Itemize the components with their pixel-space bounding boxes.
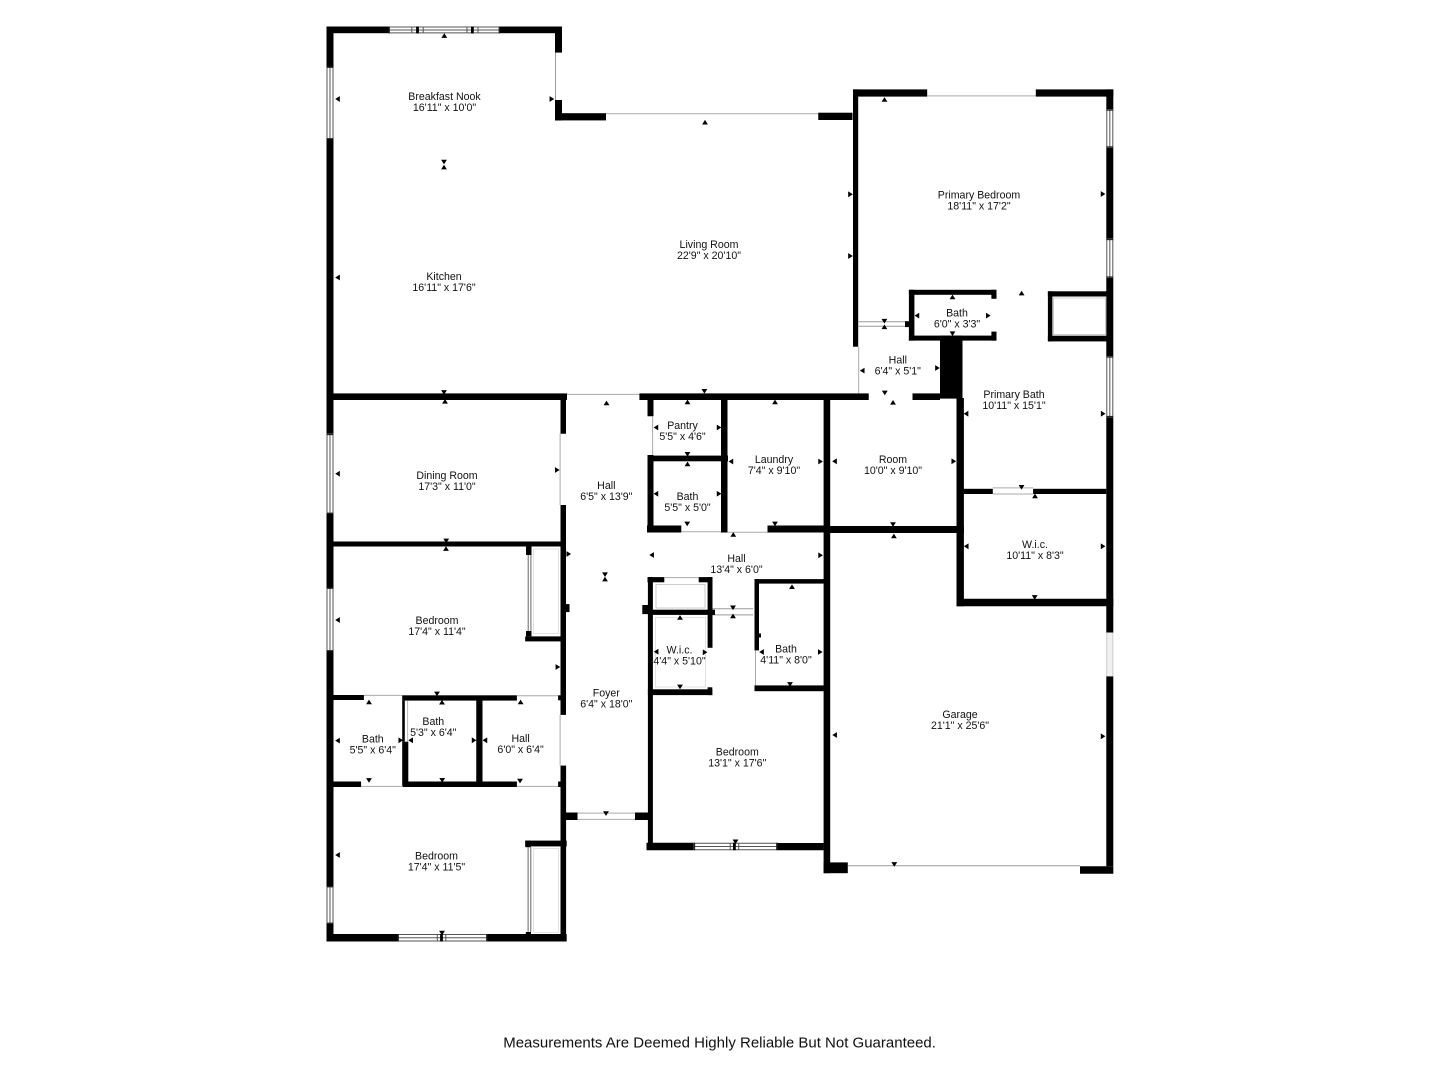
svg-text:4'4" x 5'10": 4'4" x 5'10" <box>653 655 705 667</box>
svg-text:Measurements Are Deemed Highly: Measurements Are Deemed Highly Reliable … <box>503 1034 936 1051</box>
svg-text:10'0" x 9'10": 10'0" x 9'10" <box>864 465 922 477</box>
svg-text:6'4" x 18'0": 6'4" x 18'0" <box>580 698 632 710</box>
svg-text:18'11" x 17'2": 18'11" x 17'2" <box>947 200 1010 212</box>
svg-text:5'5" x 4'6": 5'5" x 4'6" <box>659 431 706 443</box>
svg-text:6'0" x 3'3": 6'0" x 3'3" <box>934 318 981 330</box>
svg-text:13'1" x 17'6": 13'1" x 17'6" <box>708 757 766 769</box>
svg-text:17'4" x 11'5": 17'4" x 11'5" <box>408 861 466 873</box>
svg-text:5'5" x 5'0": 5'5" x 5'0" <box>664 502 711 514</box>
svg-text:22'9" x 20'10": 22'9" x 20'10" <box>677 250 741 262</box>
svg-text:10'11" x 8'3": 10'11" x 8'3" <box>1006 550 1064 562</box>
svg-text:21'1" x 25'6": 21'1" x 25'6" <box>931 720 989 732</box>
svg-text:6'5" x 13'9": 6'5" x 13'9" <box>580 491 632 503</box>
svg-text:10'11" x 15'1": 10'11" x 15'1" <box>982 400 1045 412</box>
svg-text:5'5" x 6'4": 5'5" x 6'4" <box>350 744 397 756</box>
svg-text:4'11" x 8'0": 4'11" x 8'0" <box>760 654 812 666</box>
svg-text:16'11" x 10'0": 16'11" x 10'0" <box>413 102 476 114</box>
svg-text:17'3" x 11'0": 17'3" x 11'0" <box>418 481 476 493</box>
svg-text:7'4" x 9'10": 7'4" x 9'10" <box>748 465 800 477</box>
svg-text:17'4" x 11'4": 17'4" x 11'4" <box>408 626 466 638</box>
svg-text:6'0" x 6'4": 6'0" x 6'4" <box>497 744 544 756</box>
svg-text:13'4" x 6'0": 13'4" x 6'0" <box>710 564 762 576</box>
svg-text:6'4" x 5'1": 6'4" x 5'1" <box>875 365 922 377</box>
svg-text:16'11" x 17'6": 16'11" x 17'6" <box>412 282 475 294</box>
svg-text:5'3" x 6'4": 5'3" x 6'4" <box>410 727 457 739</box>
